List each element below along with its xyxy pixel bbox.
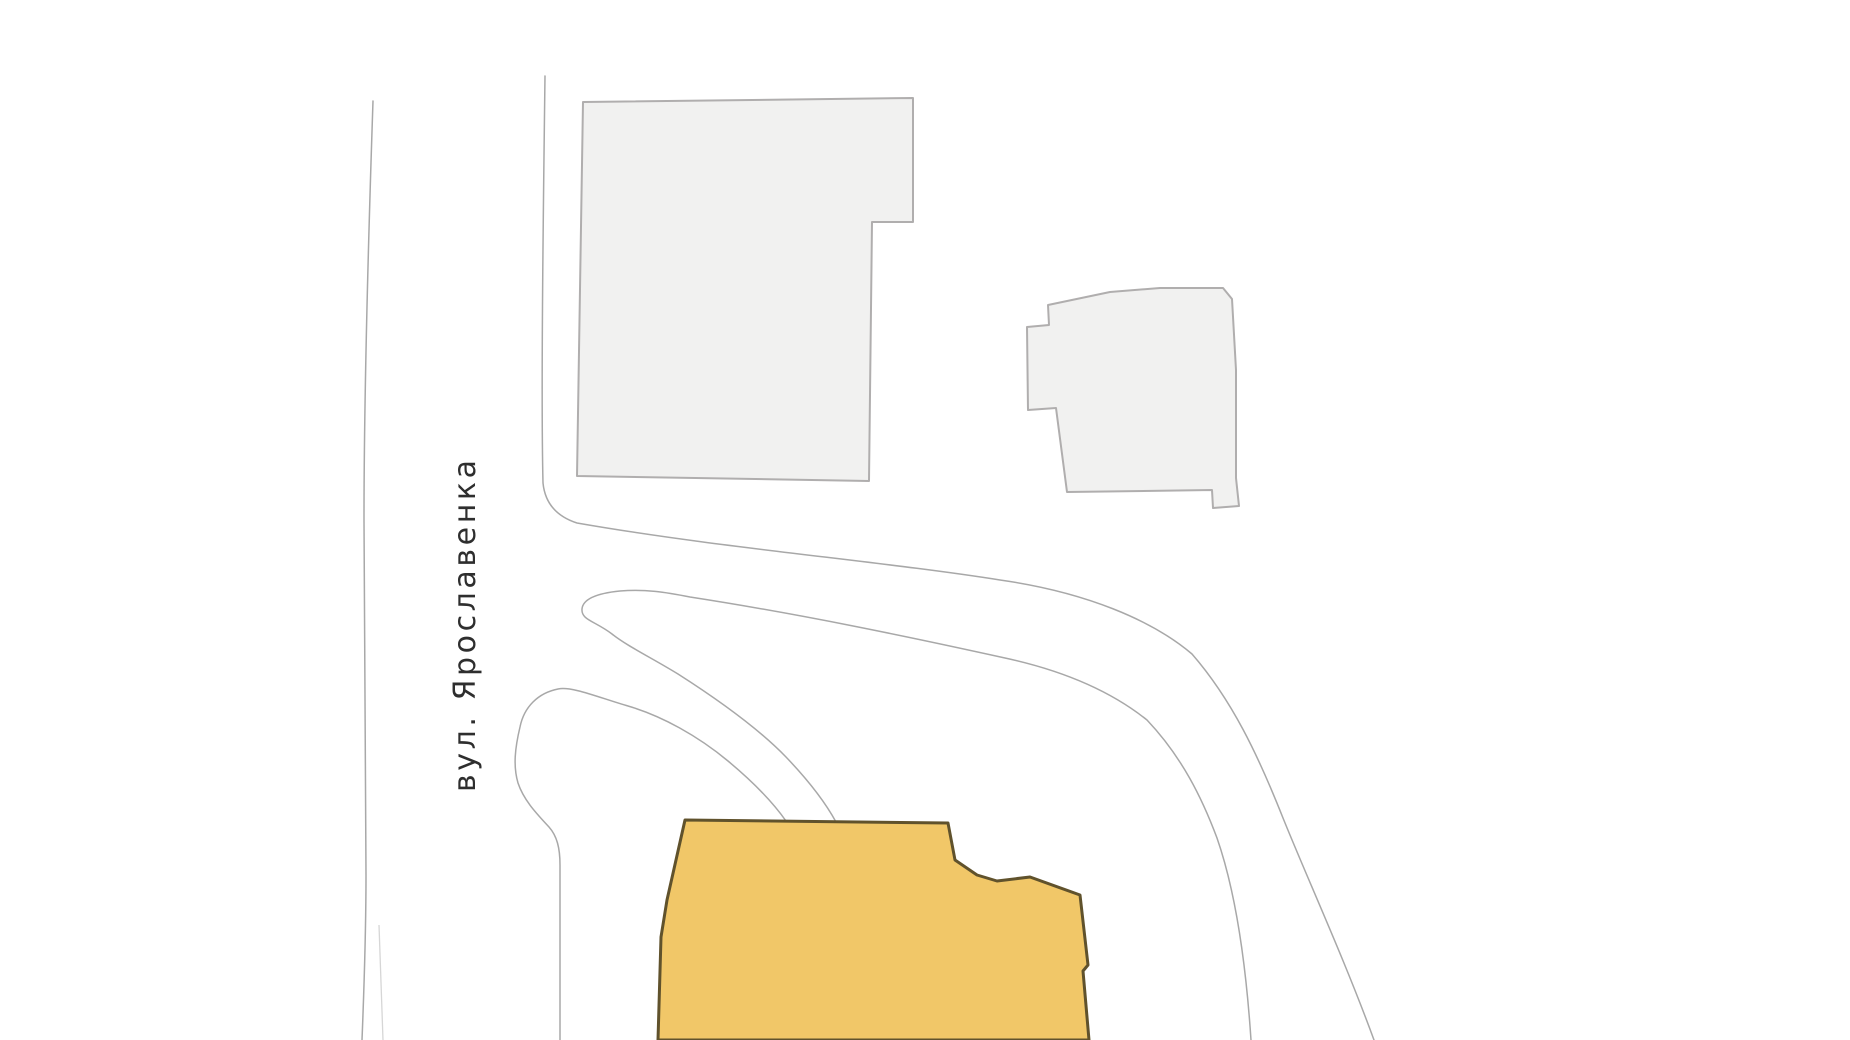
building-large-gray[interactable] [577,98,913,481]
street-name-label: вул. Ярославенка [448,457,483,792]
map-viewport[interactable]: вул. Ярославенка [0,0,1850,1040]
map-canvas[interactable]: вул. Ярославенка [0,0,1850,1040]
